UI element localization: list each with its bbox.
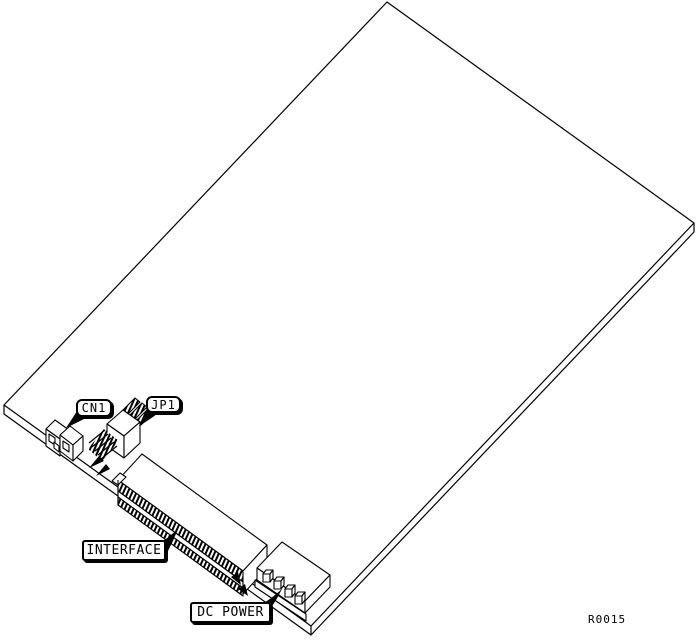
- callout-interface: INTERFACE: [82, 540, 166, 561]
- dcpower-pin-3: [285, 585, 295, 597]
- callout-jp1-label: JP1: [151, 398, 176, 412]
- callout-jp1: JP1: [146, 396, 181, 413]
- circuit-board-figure: CN1 JP1 INTERFACE DC POWER R0015: [0, 0, 696, 640]
- dcpower-pin-2: [274, 577, 284, 589]
- callout-dc-power-label: DC POWER: [197, 605, 264, 620]
- callout-dc-power: DC POWER: [190, 602, 271, 623]
- callout-cn1: CN1: [76, 399, 112, 417]
- callout-cn1-label: CN1: [82, 401, 107, 415]
- board-top-face: [4, 2, 694, 626]
- figure-reference-code: R0015: [588, 613, 626, 626]
- dcpower-pin-1: [263, 570, 273, 582]
- dcpower-pin-4: [295, 592, 305, 604]
- callout-interface-label: INTERFACE: [87, 543, 162, 558]
